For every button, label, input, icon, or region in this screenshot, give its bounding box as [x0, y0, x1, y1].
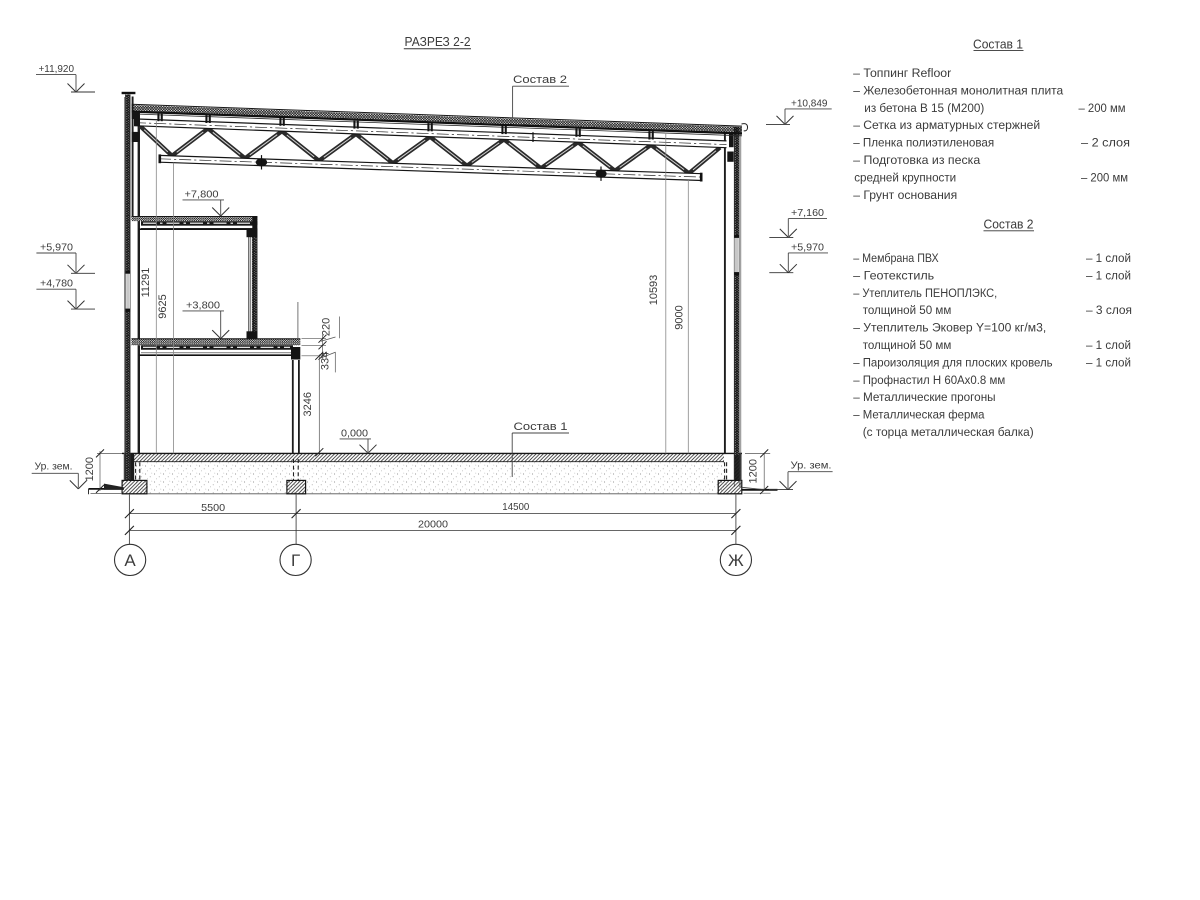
svg-text:– Топпинг Refloor: – Топпинг Refloor — [853, 66, 951, 80]
svg-text:+7,800: +7,800 — [185, 189, 219, 200]
svg-text:– Металлическая ферма: – Металлическая ферма — [853, 408, 985, 422]
svg-text:1200: 1200 — [84, 457, 96, 481]
svg-text:средней крупности: средней крупности — [854, 170, 956, 184]
svg-text:20000: 20000 — [418, 519, 448, 530]
svg-text:3246: 3246 — [302, 392, 314, 416]
svg-text:– Утеплитель ПЕНОПЛЭКС,: – Утеплитель ПЕНОПЛЭКС, — [853, 286, 997, 300]
svg-text:+5,970: +5,970 — [40, 242, 73, 253]
svg-text:– 2 слоя: – 2 слоя — [1081, 136, 1130, 150]
svg-text:+5,970: +5,970 — [791, 242, 824, 253]
svg-text:220: 220 — [320, 318, 332, 336]
svg-text:+10,849: +10,849 — [791, 98, 828, 109]
svg-text:– Профнастил Н 60Ах0.8 мм: – Профнастил Н 60Ах0.8 мм — [853, 373, 1005, 387]
svg-text:+7,160: +7,160 — [791, 208, 824, 219]
svg-text:толщиной 50 мм: толщиной 50 мм — [863, 338, 952, 352]
svg-text:РАЗРЕЗ 2-2: РАЗРЕЗ 2-2 — [405, 34, 471, 49]
svg-text:из бетона В 15 (М200): из бетона В 15 (М200) — [864, 101, 984, 115]
svg-text:Состав 1: Состав 1 — [973, 37, 1023, 51]
svg-text:Ж: Ж — [728, 551, 744, 570]
svg-text:Состав 2: Состав 2 — [513, 74, 567, 86]
svg-text:– 1 слой: – 1 слой — [1086, 268, 1131, 282]
svg-text:11291: 11291 — [140, 268, 152, 298]
svg-text:Состав 2: Состав 2 — [984, 218, 1034, 232]
svg-text:толщиной 50 мм: толщиной 50 мм — [863, 303, 952, 317]
svg-text:– 200 мм: – 200 мм — [1081, 170, 1128, 184]
svg-text:– 3 слоя: – 3 слоя — [1086, 303, 1132, 317]
svg-text:5500: 5500 — [201, 503, 225, 514]
svg-text:10593: 10593 — [648, 275, 660, 306]
svg-text:– 200 мм: – 200 мм — [1079, 101, 1126, 115]
svg-text:– Железобетонная монолитная п: – Железобетонная монолитная плита — [853, 83, 1063, 97]
svg-text:– 1 слой: – 1 слой — [1086, 251, 1131, 265]
svg-text:Ур. зем.: Ур. зем. — [35, 461, 73, 472]
svg-text:– Утеплитель Эковер Y=100 кг/м: – Утеплитель Эковер Y=100 кг/м3, — [853, 321, 1046, 335]
svg-text:+3,800: +3,800 — [186, 300, 220, 311]
svg-text:– Сетка из арматурных стержней: – Сетка из арматурных стержней — [853, 118, 1040, 132]
svg-text:– Мембрана ПВХ: – Мембрана ПВХ — [853, 251, 939, 265]
svg-text:– Геотекстиль: – Геотекстиль — [853, 268, 934, 282]
svg-text:+4,780: +4,780 — [40, 279, 73, 290]
svg-text:Г: Г — [291, 551, 300, 570]
svg-text:Состав 1: Состав 1 — [514, 421, 568, 433]
svg-text:9625: 9625 — [157, 294, 169, 318]
svg-text:– Подготовка из песка: – Подготовка из песка — [853, 153, 980, 167]
svg-text:1200: 1200 — [748, 459, 760, 483]
svg-text:– Металлические прогоны: – Металлические прогоны — [853, 390, 995, 404]
svg-text:Ур. зем.: Ур. зем. — [791, 461, 832, 472]
svg-text:– Грунт основания: – Грунт основания — [853, 188, 957, 202]
svg-text:– 1 слой: – 1 слой — [1086, 355, 1131, 369]
svg-text:14500: 14500 — [502, 502, 529, 513]
svg-text:– 1 слой: – 1 слой — [1086, 338, 1131, 352]
svg-text:9000: 9000 — [673, 305, 685, 329]
svg-text:А: А — [124, 551, 136, 570]
svg-text:(с торца металлическая балка): (с торца металлическая балка) — [863, 425, 1034, 439]
svg-text:+11,920: +11,920 — [39, 64, 75, 75]
svg-text:0,000: 0,000 — [341, 428, 368, 439]
svg-text:– Пароизоляция для плоских кро: – Пароизоляция для плоских кровель — [853, 355, 1052, 369]
svg-text:– Пленка полиэтиленовая: – Пленка полиэтиленовая — [853, 136, 994, 150]
